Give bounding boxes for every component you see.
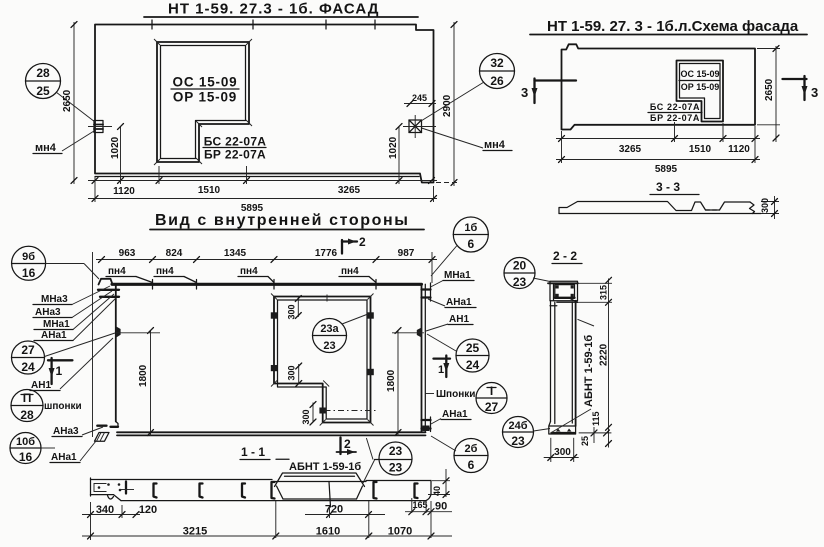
svg-text:315: 315 bbox=[599, 285, 609, 300]
svg-text:АНа1: АНа1 bbox=[442, 409, 468, 420]
svg-text:пн4: пн4 bbox=[240, 266, 258, 277]
svg-text:23: 23 bbox=[389, 444, 403, 458]
svg-text:1: 1 bbox=[56, 364, 63, 378]
svg-text:1800: 1800 bbox=[386, 369, 397, 392]
svg-text:БС 22-07А: БС 22-07А bbox=[204, 135, 267, 149]
svg-text:АНа1: АНа1 bbox=[41, 330, 67, 341]
svg-text:23: 23 bbox=[323, 340, 335, 352]
svg-text:пн4: пн4 bbox=[156, 266, 174, 277]
svg-text:28: 28 bbox=[20, 408, 34, 422]
svg-text:2: 2 bbox=[344, 437, 351, 451]
svg-text:2900: 2900 bbox=[442, 94, 453, 117]
svg-text:115: 115 bbox=[591, 411, 601, 426]
svg-text:мн4: мн4 bbox=[484, 139, 506, 151]
svg-text:9б: 9б bbox=[22, 251, 35, 263]
svg-text:20: 20 bbox=[513, 259, 527, 273]
svg-text:300: 300 bbox=[287, 365, 297, 380]
svg-text:БС 22-07А: БС 22-07А bbox=[650, 102, 700, 112]
svg-text:мн4: мн4 bbox=[35, 142, 57, 154]
svg-text:ОР 15-09: ОР 15-09 bbox=[681, 82, 720, 92]
svg-text:27: 27 bbox=[485, 400, 499, 414]
svg-text:1510: 1510 bbox=[198, 185, 221, 196]
svg-text:23а: 23а bbox=[320, 323, 339, 335]
svg-text:АНа1: АНа1 bbox=[51, 452, 77, 463]
svg-text:1776: 1776 bbox=[315, 248, 338, 259]
svg-text:3265: 3265 bbox=[338, 185, 361, 196]
svg-text:3: 3 bbox=[811, 85, 818, 100]
svg-text:6: 6 bbox=[467, 237, 474, 251]
svg-text:АН1: АН1 bbox=[449, 314, 469, 325]
svg-text:П: П bbox=[23, 391, 32, 405]
svg-text:1510: 1510 bbox=[689, 144, 712, 155]
svg-text:1: 1 bbox=[438, 364, 444, 376]
svg-text:24: 24 bbox=[466, 358, 480, 372]
svg-text:АН1: АН1 bbox=[31, 380, 51, 391]
svg-text:1020: 1020 bbox=[388, 136, 399, 159]
svg-text:40: 40 bbox=[432, 486, 442, 496]
svg-text:340: 340 bbox=[96, 504, 114, 516]
svg-text:1070: 1070 bbox=[388, 526, 412, 538]
svg-text:25: 25 bbox=[466, 341, 480, 355]
svg-text:24: 24 bbox=[21, 360, 35, 374]
svg-text:2: 2 bbox=[359, 235, 366, 249]
svg-text:120: 120 bbox=[139, 504, 157, 516]
svg-text:НТ 1-59. 27.3 - 1б. ФАСАД: НТ 1-59. 27.3 - 1б. ФАСАД bbox=[168, 1, 379, 18]
svg-text:1800: 1800 bbox=[138, 364, 149, 387]
svg-text:90: 90 bbox=[435, 501, 447, 513]
svg-text:ОС 15-09: ОС 15-09 bbox=[173, 75, 238, 90]
svg-text:НТ 1-59. 27. 3 - 1б.л.Схема фа: НТ 1-59. 27. 3 - 1б.л.Схема фасада bbox=[547, 18, 799, 35]
svg-text:3265: 3265 bbox=[619, 144, 642, 155]
svg-text:300: 300 bbox=[287, 304, 297, 319]
svg-text:1 - 1: 1 - 1 bbox=[241, 445, 265, 459]
svg-text:I: I bbox=[490, 384, 493, 398]
svg-text:МНа3: МНа3 bbox=[41, 294, 68, 305]
svg-text:300: 300 bbox=[554, 447, 571, 458]
svg-text:1120: 1120 bbox=[113, 186, 135, 197]
svg-text:ОР 15-09: ОР 15-09 bbox=[173, 90, 237, 105]
svg-text:32: 32 bbox=[490, 56, 504, 70]
svg-text:165: 165 bbox=[412, 500, 427, 510]
svg-text:3: 3 bbox=[521, 85, 528, 100]
svg-text:23: 23 bbox=[389, 461, 403, 475]
svg-text:28: 28 bbox=[36, 66, 50, 80]
svg-text:МНа1: МНа1 bbox=[43, 319, 70, 330]
svg-text:300: 300 bbox=[301, 409, 311, 424]
svg-text:БР 22-07А: БР 22-07А bbox=[204, 148, 266, 162]
svg-text:2650: 2650 bbox=[764, 78, 775, 101]
svg-text:АБНТ 1-59-1б: АБНТ 1-59-1б bbox=[583, 335, 595, 407]
svg-text:25: 25 bbox=[580, 436, 590, 446]
svg-text:16: 16 bbox=[19, 450, 33, 464]
svg-text:2 - 2: 2 - 2 bbox=[553, 249, 577, 263]
svg-text:245: 245 bbox=[412, 93, 427, 103]
svg-text:26: 26 bbox=[490, 74, 504, 88]
svg-text:АБНТ 1-59-1б: АБНТ 1-59-1б bbox=[289, 461, 361, 473]
svg-text:1610: 1610 bbox=[316, 526, 340, 538]
svg-text:1020: 1020 bbox=[110, 136, 121, 159]
svg-text:1345: 1345 bbox=[224, 248, 247, 259]
svg-text:БР 22-07А: БР 22-07А bbox=[650, 113, 700, 123]
svg-text:824: 824 bbox=[166, 248, 183, 259]
svg-text:АНа3: АНа3 bbox=[53, 426, 79, 437]
svg-text:пн4: пн4 bbox=[108, 266, 126, 277]
svg-text:2220: 2220 bbox=[599, 343, 610, 366]
svg-text:МНа1: МНа1 bbox=[444, 270, 471, 281]
svg-text:АНа3: АНа3 bbox=[35, 307, 61, 318]
svg-text:пн4: пн4 bbox=[341, 266, 359, 277]
svg-text:16: 16 bbox=[22, 266, 36, 280]
svg-text:1120: 1120 bbox=[728, 144, 750, 155]
svg-text:23: 23 bbox=[513, 275, 527, 289]
svg-text:3215: 3215 bbox=[183, 526, 207, 538]
svg-text:АНа1: АНа1 bbox=[446, 297, 472, 308]
svg-text:23: 23 bbox=[511, 434, 525, 448]
svg-text:24б: 24б bbox=[508, 420, 527, 432]
svg-text:6: 6 bbox=[468, 458, 475, 472]
svg-text:ОС 15-09: ОС 15-09 bbox=[680, 69, 719, 79]
svg-text:5895: 5895 bbox=[655, 164, 678, 175]
svg-text:Вид с внутренней стороны: Вид с внутренней стороны bbox=[155, 212, 410, 229]
svg-text:Шпонки: Шпонки bbox=[436, 389, 475, 400]
svg-text:2б: 2б bbox=[465, 443, 478, 455]
svg-text:2650: 2650 bbox=[62, 89, 73, 112]
svg-text:963: 963 bbox=[119, 248, 136, 259]
svg-text:27: 27 bbox=[21, 343, 35, 357]
svg-text:720: 720 bbox=[325, 504, 343, 516]
svg-text:3 - 3: 3 - 3 bbox=[656, 180, 680, 194]
svg-text:1б: 1б bbox=[464, 222, 477, 234]
svg-text:шпонки: шпонки bbox=[44, 401, 82, 412]
svg-text:300: 300 bbox=[760, 198, 770, 213]
svg-text:25: 25 bbox=[36, 84, 50, 98]
svg-text:987: 987 bbox=[398, 248, 415, 259]
svg-text:10б: 10б bbox=[16, 436, 35, 448]
